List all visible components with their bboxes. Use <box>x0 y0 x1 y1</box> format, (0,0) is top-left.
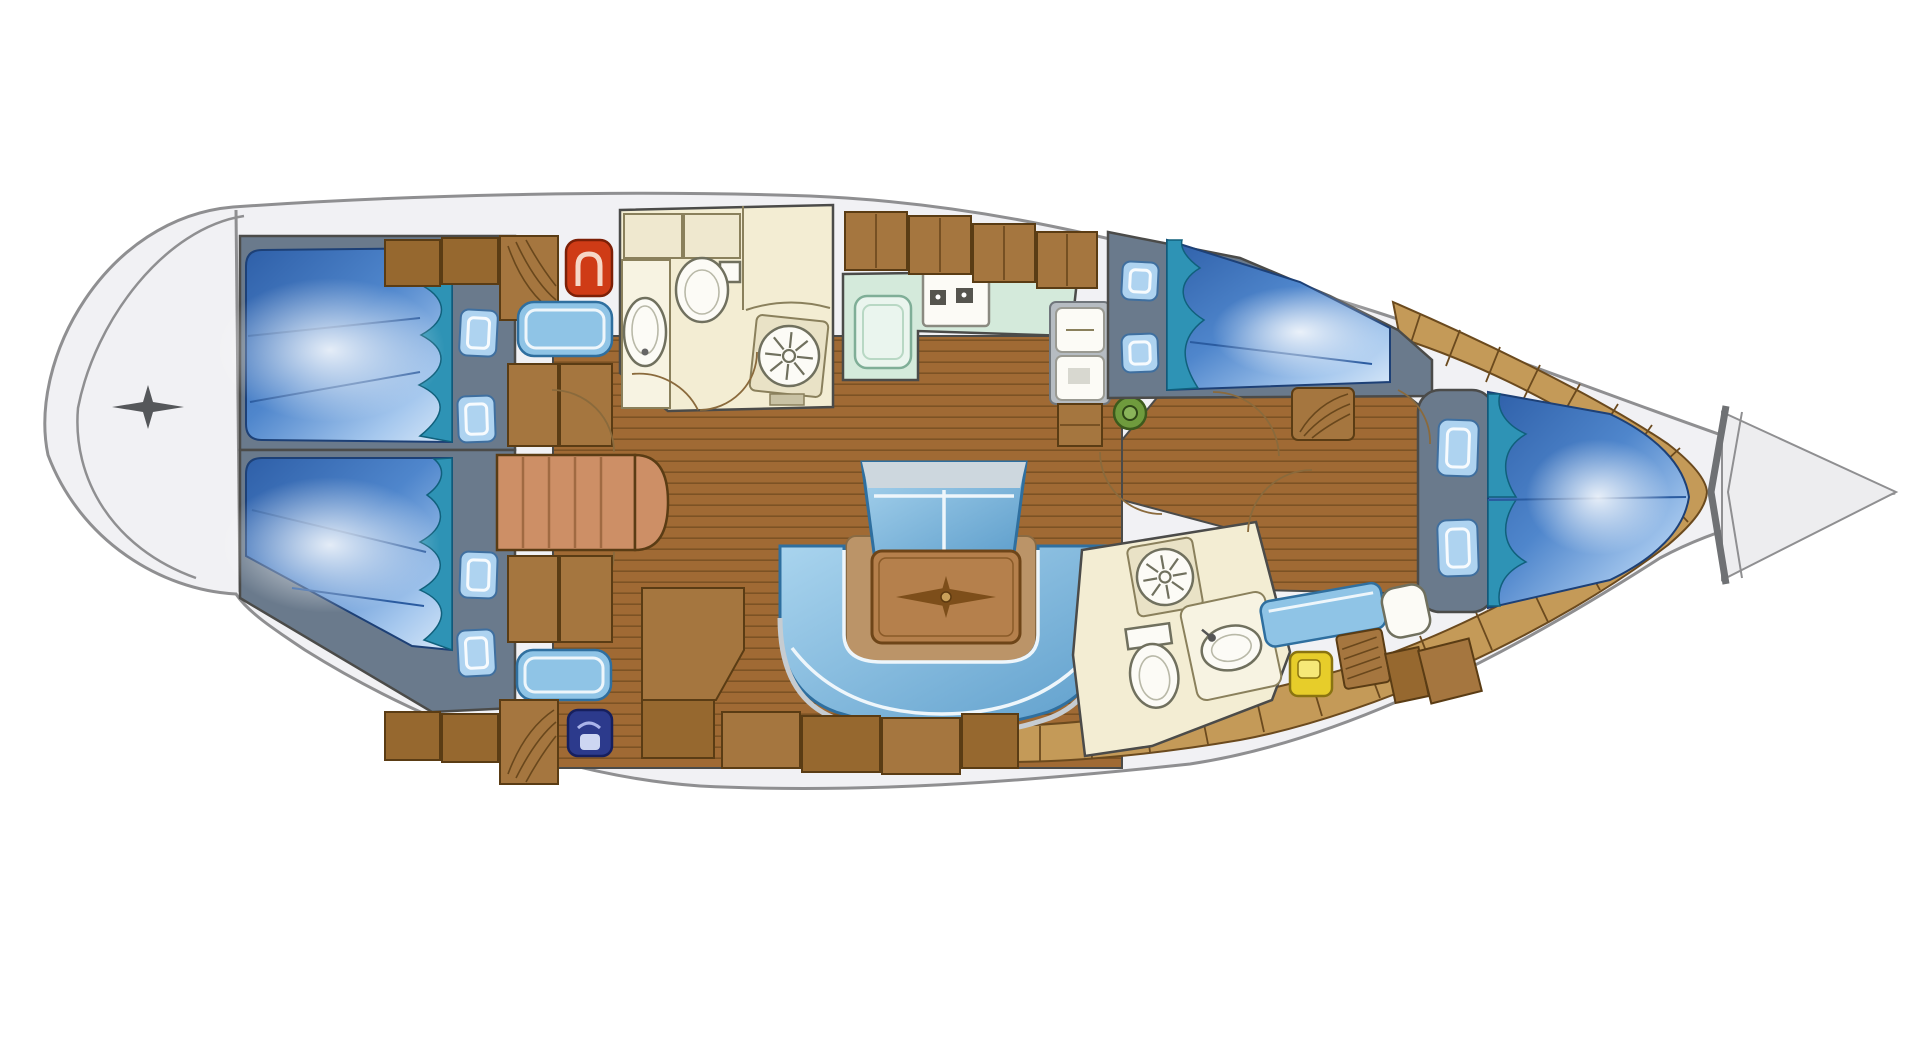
pillow <box>457 629 496 677</box>
pillow <box>1437 419 1479 476</box>
pillow <box>459 551 498 598</box>
louvered-locker <box>1336 628 1391 689</box>
louvered-locker <box>500 700 558 784</box>
storage-box <box>722 712 800 768</box>
shower-rosette <box>749 314 829 397</box>
storage-module <box>642 700 714 758</box>
vent-grille <box>770 394 804 405</box>
deck-locker <box>385 240 440 286</box>
yacht-floorplan-page <box>0 0 1920 1048</box>
pillow <box>457 395 496 442</box>
pillow <box>1121 333 1158 372</box>
louvered-dresser <box>1292 388 1354 440</box>
cabinet <box>560 556 612 642</box>
deck-locker <box>385 712 440 760</box>
round-basin <box>624 298 666 366</box>
green-stool <box>1114 397 1146 429</box>
aft-head <box>620 205 833 411</box>
red-washbasin <box>566 240 612 296</box>
deck-locker <box>442 714 498 762</box>
cabinet <box>560 364 612 446</box>
storage-box <box>962 714 1018 768</box>
yacht-floorplan-diagram <box>0 0 1920 1048</box>
galley-sink <box>855 296 911 368</box>
bed-highlight <box>1212 286 1388 378</box>
pillow <box>1437 519 1479 576</box>
companionway-steps <box>497 455 635 550</box>
cabin-seat <box>517 650 611 700</box>
pillow <box>1121 261 1159 301</box>
cabin-seat <box>518 302 612 356</box>
pillow <box>459 309 498 357</box>
head-cabinet <box>684 214 740 258</box>
salon-table <box>872 551 1020 643</box>
bench-seat <box>862 462 1026 553</box>
nav-box-detail <box>1068 368 1090 384</box>
bed-highlight <box>1526 439 1670 555</box>
deck-locker <box>442 238 498 284</box>
storage-box <box>802 716 880 772</box>
anchor-locker-floor <box>1722 412 1896 580</box>
aft-cabin-starboard <box>220 450 515 712</box>
cabinet <box>508 364 558 446</box>
storage-box <box>882 718 960 774</box>
cabinet <box>508 556 558 642</box>
bed-highlight <box>220 477 440 613</box>
anchor-locker <box>1711 406 1896 584</box>
head-cabinet <box>624 214 682 258</box>
yellow-locker <box>1290 652 1332 696</box>
navy-washbasin <box>568 710 612 756</box>
bed-highlight <box>215 278 445 422</box>
